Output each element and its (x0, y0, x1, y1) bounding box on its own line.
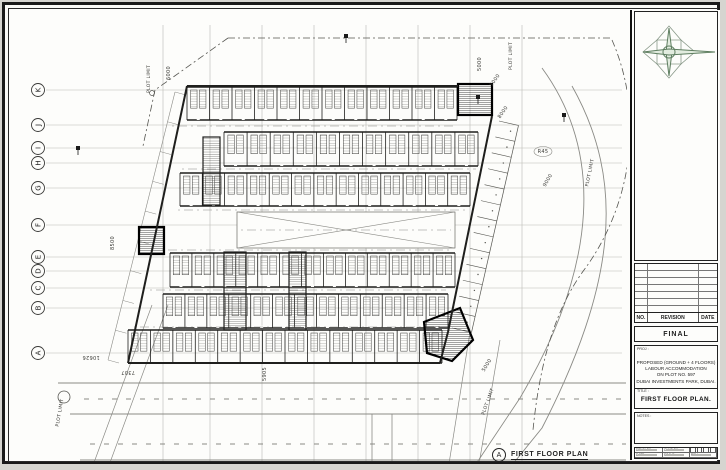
drawing-title: FIRST FLOOR PLAN. (635, 396, 717, 403)
svg-text:A: A (34, 350, 42, 355)
title-block-panel: NO. REVISION DATE FINAL PROJ : PROPOSED … (630, 10, 720, 460)
svg-text:8000: 8000 (497, 105, 510, 120)
svg-text:5000: 5000 (489, 73, 502, 88)
revision-table: NO. REVISION DATE (634, 263, 718, 323)
revision-rows (635, 264, 717, 313)
title-label: TITLE : (637, 389, 649, 393)
svg-text:7307: 7307 (121, 369, 135, 375)
scale-field: SCALE : (663, 453, 690, 458)
project-description: PROPOSED (GROUND + 4 FLOORS) LABOUR ACCO… (636, 360, 716, 385)
revision-header: NO. REVISION DATE (635, 312, 717, 322)
project-label: PROJ : (637, 347, 649, 351)
svg-text:10626: 10626 (82, 354, 99, 360)
svg-text:5000: 5000 (481, 358, 493, 373)
revision-col-date: DATE (699, 313, 717, 322)
compass-box (634, 11, 718, 261)
svg-text:K: K (34, 87, 42, 92)
svg-text:D: D (34, 268, 42, 273)
revision-col-revision: REVISION (648, 313, 699, 322)
date-field: DATE : (635, 453, 663, 458)
notes-label: NOTES : (637, 414, 651, 418)
svg-text:PLOT LIMIT: PLOT LIMIT (508, 42, 514, 70)
view-title: A FIRST FLOOR PLAN (492, 448, 588, 462)
floor-plan-drawing: KJIHGFEDCBAPLOT LIMIT6000PLOT LIMIT50005… (9, 9, 627, 461)
svg-text:R45: R45 (538, 149, 549, 155)
signature-fields: DRWN BY : CHKD BY : DATE : SCALE : REV : (634, 447, 718, 459)
project-box: PROJ : PROPOSED (GROUND + 4 FLOORS) LABO… (634, 345, 718, 409)
notes-box: NOTES : (634, 412, 718, 444)
svg-text:F: F (34, 223, 42, 227)
rev-field: REV : (690, 453, 717, 458)
view-title-text: FIRST FLOOR PLAN (511, 451, 588, 460)
svg-text:C: C (34, 285, 42, 290)
svg-text:8500: 8500 (110, 236, 116, 250)
scanned-floorplan-page: KJIHGFEDCBAPLOT LIMIT6000PLOT LIMIT50005… (0, 0, 726, 470)
north-compass-icon (635, 12, 719, 92)
svg-text:5000: 5000 (477, 57, 483, 71)
svg-text:E: E (34, 255, 42, 259)
svg-text:PLOT LIMIT: PLOT LIMIT (146, 65, 152, 93)
svg-text:5905: 5905 (262, 367, 268, 381)
svg-text:9000: 9000 (542, 173, 554, 188)
svg-text:I: I (34, 147, 42, 149)
revision-col-no: NO. (635, 313, 648, 322)
svg-text:H: H (34, 160, 42, 165)
status-banner: FINAL (634, 326, 718, 342)
svg-text:J: J (34, 124, 42, 127)
view-bubble: A (492, 448, 506, 462)
svg-text:B: B (34, 305, 42, 310)
svg-text:G: G (34, 185, 42, 190)
svg-text:6000: 6000 (166, 66, 172, 80)
